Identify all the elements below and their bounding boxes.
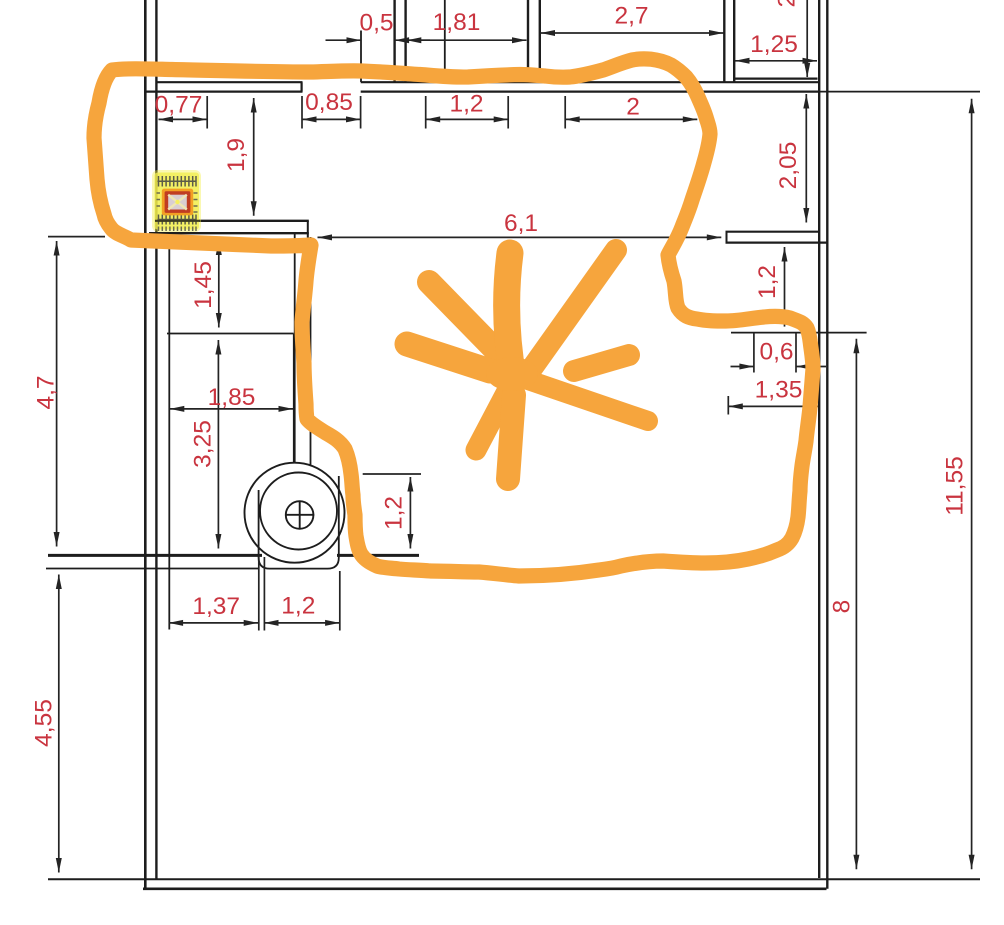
svg-text:1,9: 1,9 [223, 138, 250, 172]
svg-text:1,2: 1,2 [281, 593, 315, 620]
svg-text:4,7: 4,7 [32, 375, 59, 409]
svg-text:6,1: 6,1 [504, 210, 538, 237]
svg-text:1,25: 1,25 [750, 31, 798, 58]
svg-text:2,7: 2,7 [614, 3, 648, 30]
svg-text:1,85: 1,85 [208, 384, 256, 411]
svg-text:0,6: 0,6 [759, 339, 793, 366]
svg-text:3,25: 3,25 [189, 420, 216, 468]
svg-text:1,35: 1,35 [755, 377, 803, 404]
svg-text:11,55: 11,55 [941, 456, 968, 516]
svg-text:2,2: 2,2 [774, 0, 801, 8]
svg-text:1,37: 1,37 [192, 593, 240, 620]
svg-text:0,85: 0,85 [305, 89, 353, 116]
svg-text:0,5: 0,5 [359, 10, 393, 37]
svg-text:1,2: 1,2 [381, 496, 408, 530]
svg-text:2,05: 2,05 [775, 142, 802, 190]
svg-text:1,45: 1,45 [190, 261, 217, 309]
svg-text:2: 2 [626, 94, 640, 121]
svg-text:1,2: 1,2 [449, 91, 483, 118]
svg-text:8: 8 [829, 600, 856, 614]
svg-text:4,55: 4,55 [31, 699, 58, 747]
svg-text:1,2: 1,2 [754, 265, 781, 299]
svg-text:0,77: 0,77 [155, 92, 203, 119]
svg-text:1,81: 1,81 [433, 9, 481, 36]
